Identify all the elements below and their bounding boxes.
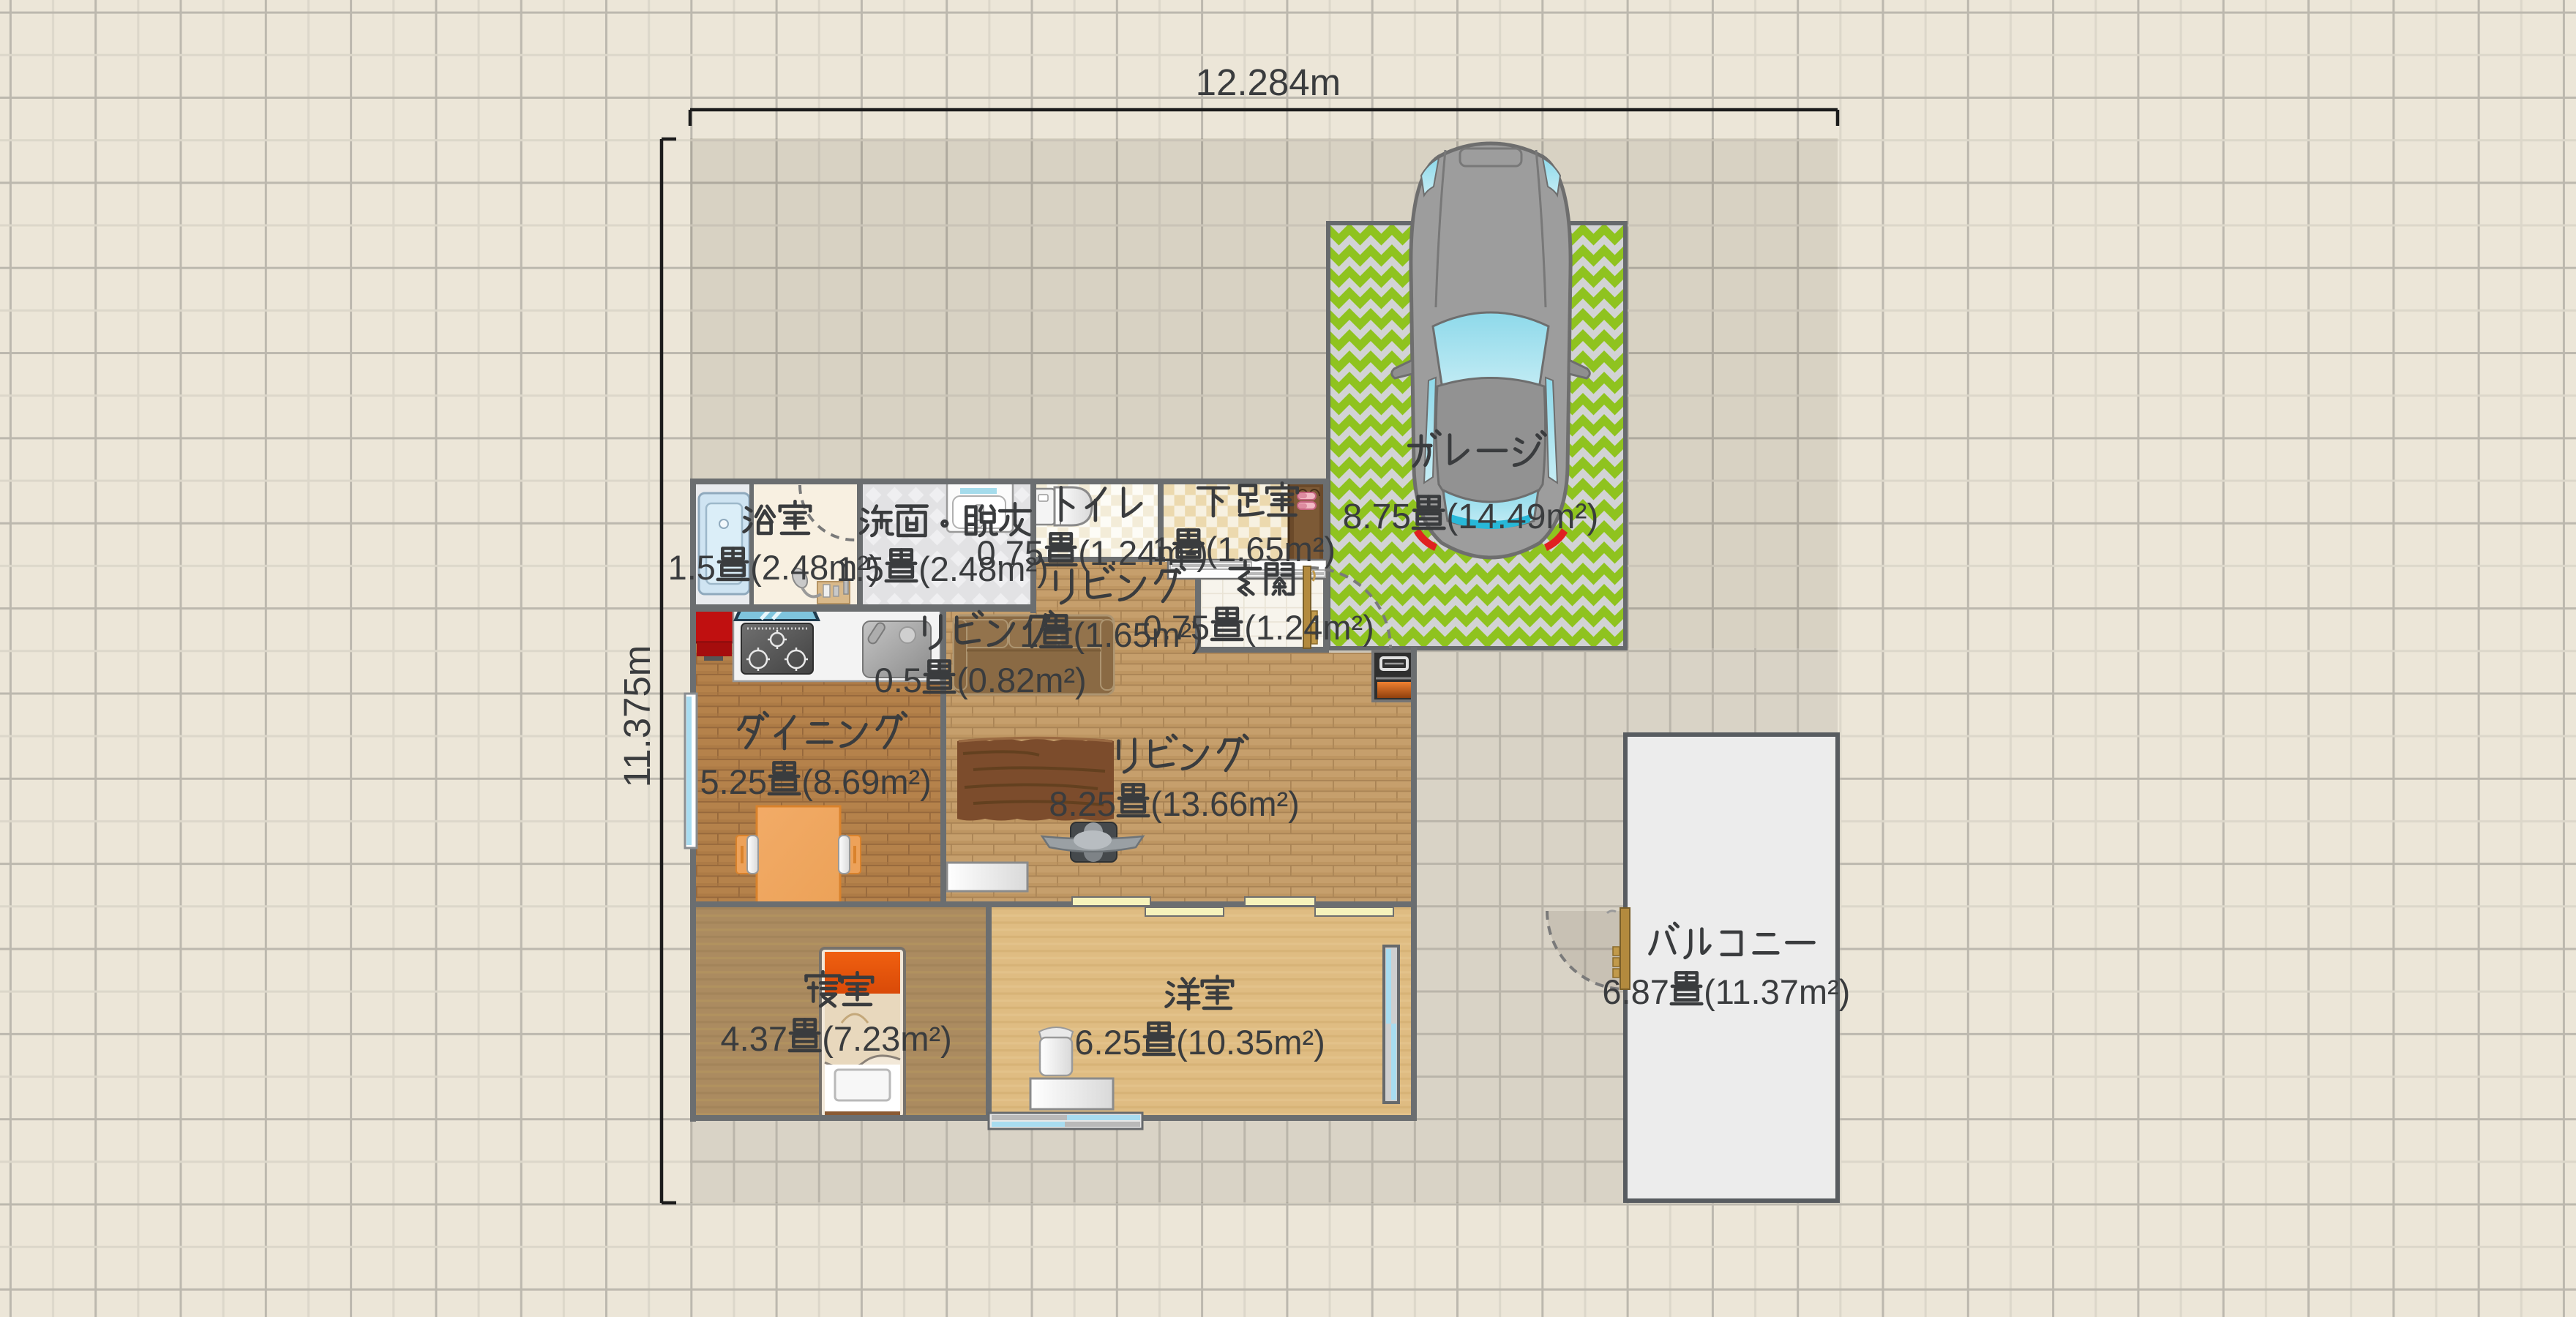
- svg-text:(8.69m²): (8.69m²): [801, 762, 932, 801]
- svg-text:6.25: 6.25: [1074, 1023, 1141, 1062]
- svg-text:1: 1: [1152, 530, 1171, 569]
- svg-text:1.5: 1.5: [836, 549, 884, 588]
- svg-text:(7.23m²): (7.23m²): [822, 1019, 952, 1058]
- svg-text:1.5: 1.5: [668, 548, 716, 587]
- svg-text:8.25: 8.25: [1049, 784, 1115, 823]
- svg-text:1: 1: [1019, 615, 1038, 654]
- svg-text:11.375m: 11.375m: [616, 645, 658, 788]
- svg-text:0.5: 0.5: [875, 661, 922, 699]
- svg-text:4.37: 4.37: [721, 1019, 787, 1058]
- svg-text:5.25: 5.25: [700, 762, 767, 801]
- svg-text:12.284m: 12.284m: [1196, 61, 1341, 103]
- svg-text:(14.49m²): (14.49m²): [1446, 498, 1598, 536]
- svg-text:(13.66m²): (13.66m²): [1150, 784, 1300, 823]
- svg-text:(11.37m²): (11.37m²): [1704, 972, 1850, 1011]
- svg-text:0.75: 0.75: [977, 533, 1044, 572]
- svg-text:(0.82m²): (0.82m²): [956, 661, 1087, 699]
- svg-text:(10.35m²): (10.35m²): [1176, 1023, 1325, 1062]
- svg-text:(1.65m²): (1.65m²): [1074, 615, 1204, 654]
- svg-text:(1.24m²): (1.24m²): [1244, 608, 1374, 647]
- svg-text:8.75: 8.75: [1343, 498, 1411, 536]
- svg-text:6.87: 6.87: [1602, 972, 1669, 1011]
